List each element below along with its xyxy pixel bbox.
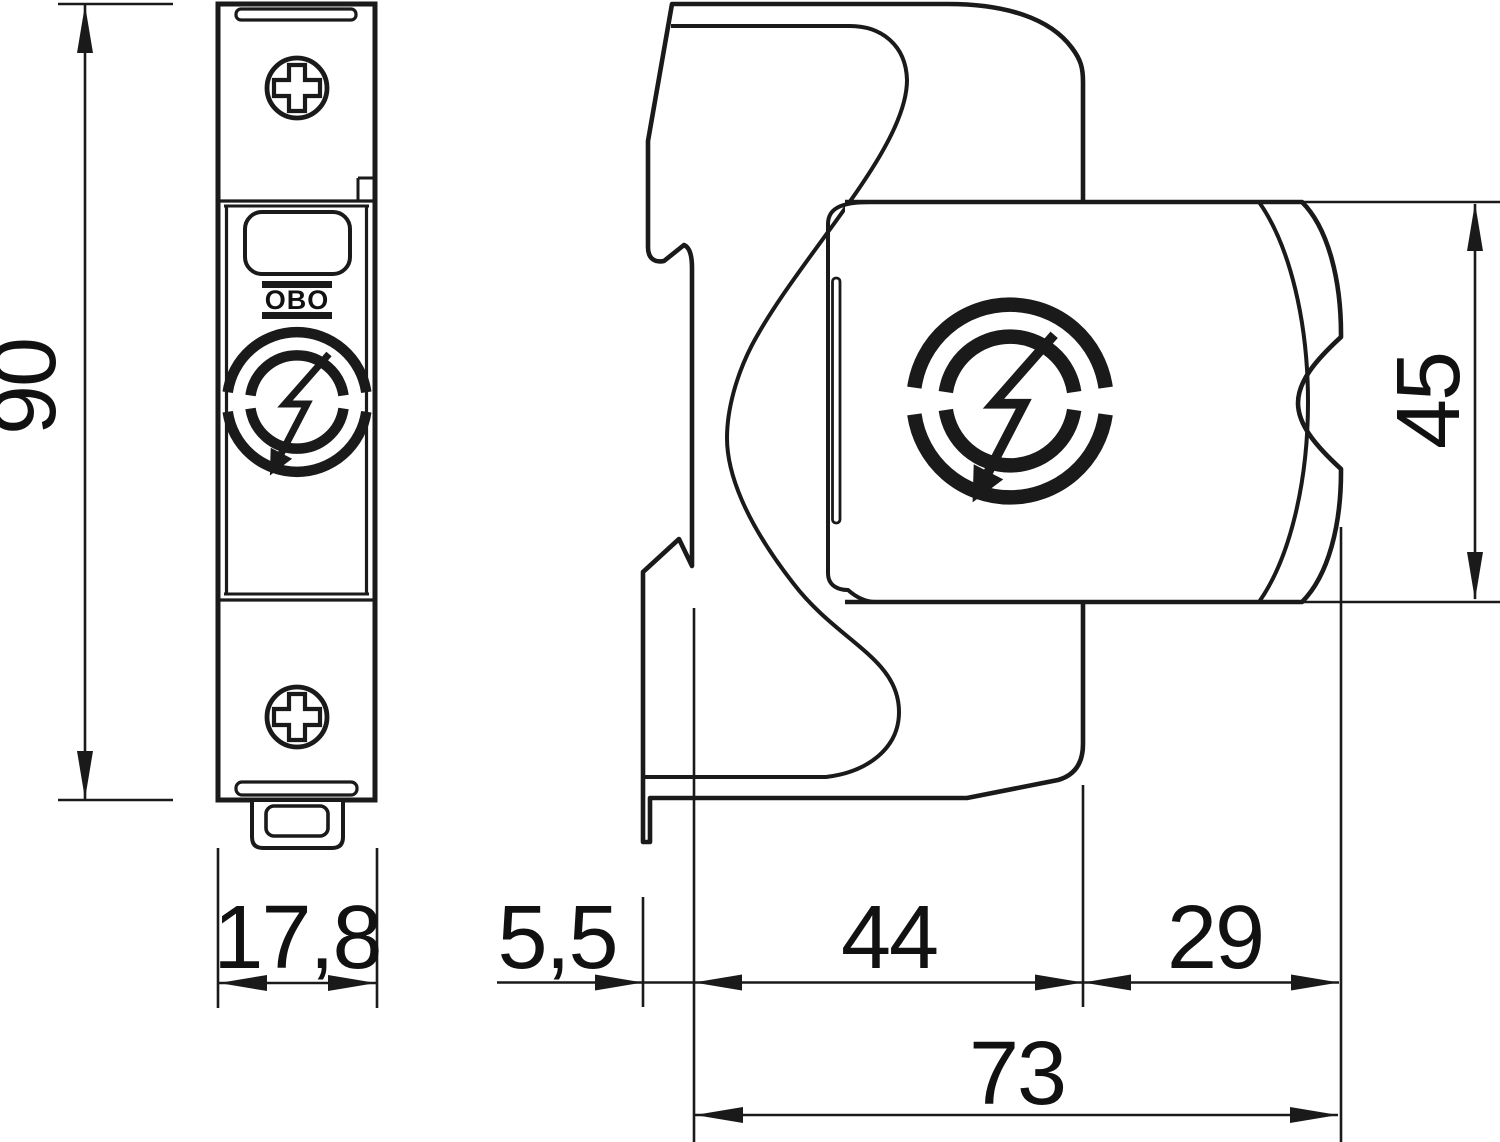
front-view: OBO: [218, 4, 375, 848]
dimension-drawing: OBO 90: [0, 0, 1500, 1142]
dim-base-depth-label: 44: [841, 888, 937, 988]
dim-module-height: 45: [1379, 203, 1483, 600]
dim-rail-offset-label: 5,5: [497, 888, 616, 988]
technical-drawing-page: OBO 90: [0, 0, 1500, 1142]
upper-screw-icon: [267, 58, 327, 118]
dim-rail-offset: 5,5: [497, 888, 742, 991]
module-fill: [845, 202, 1341, 602]
dim-width: 17,8: [213, 848, 380, 1008]
dim-height: 90: [0, 4, 173, 800]
brand-logo: OBO: [262, 281, 332, 319]
side-view: [643, 4, 1341, 842]
brand-text: OBO: [265, 285, 330, 315]
dim-base-depth: 44: [841, 888, 1083, 991]
dim-module-depth: 29: [1083, 888, 1339, 991]
dim-height-label: 90: [0, 339, 75, 435]
dim-module-height-label: 45: [1379, 353, 1479, 449]
dim-module-depth-label: 29: [1167, 888, 1263, 988]
brand-bar-bottom: [262, 312, 332, 319]
dim-total-depth: 73: [695, 1024, 1338, 1124]
dim-width-label: 17,8: [213, 888, 380, 988]
lower-screw-icon: [267, 687, 327, 747]
dim-total-depth-label: 73: [969, 1024, 1065, 1124]
